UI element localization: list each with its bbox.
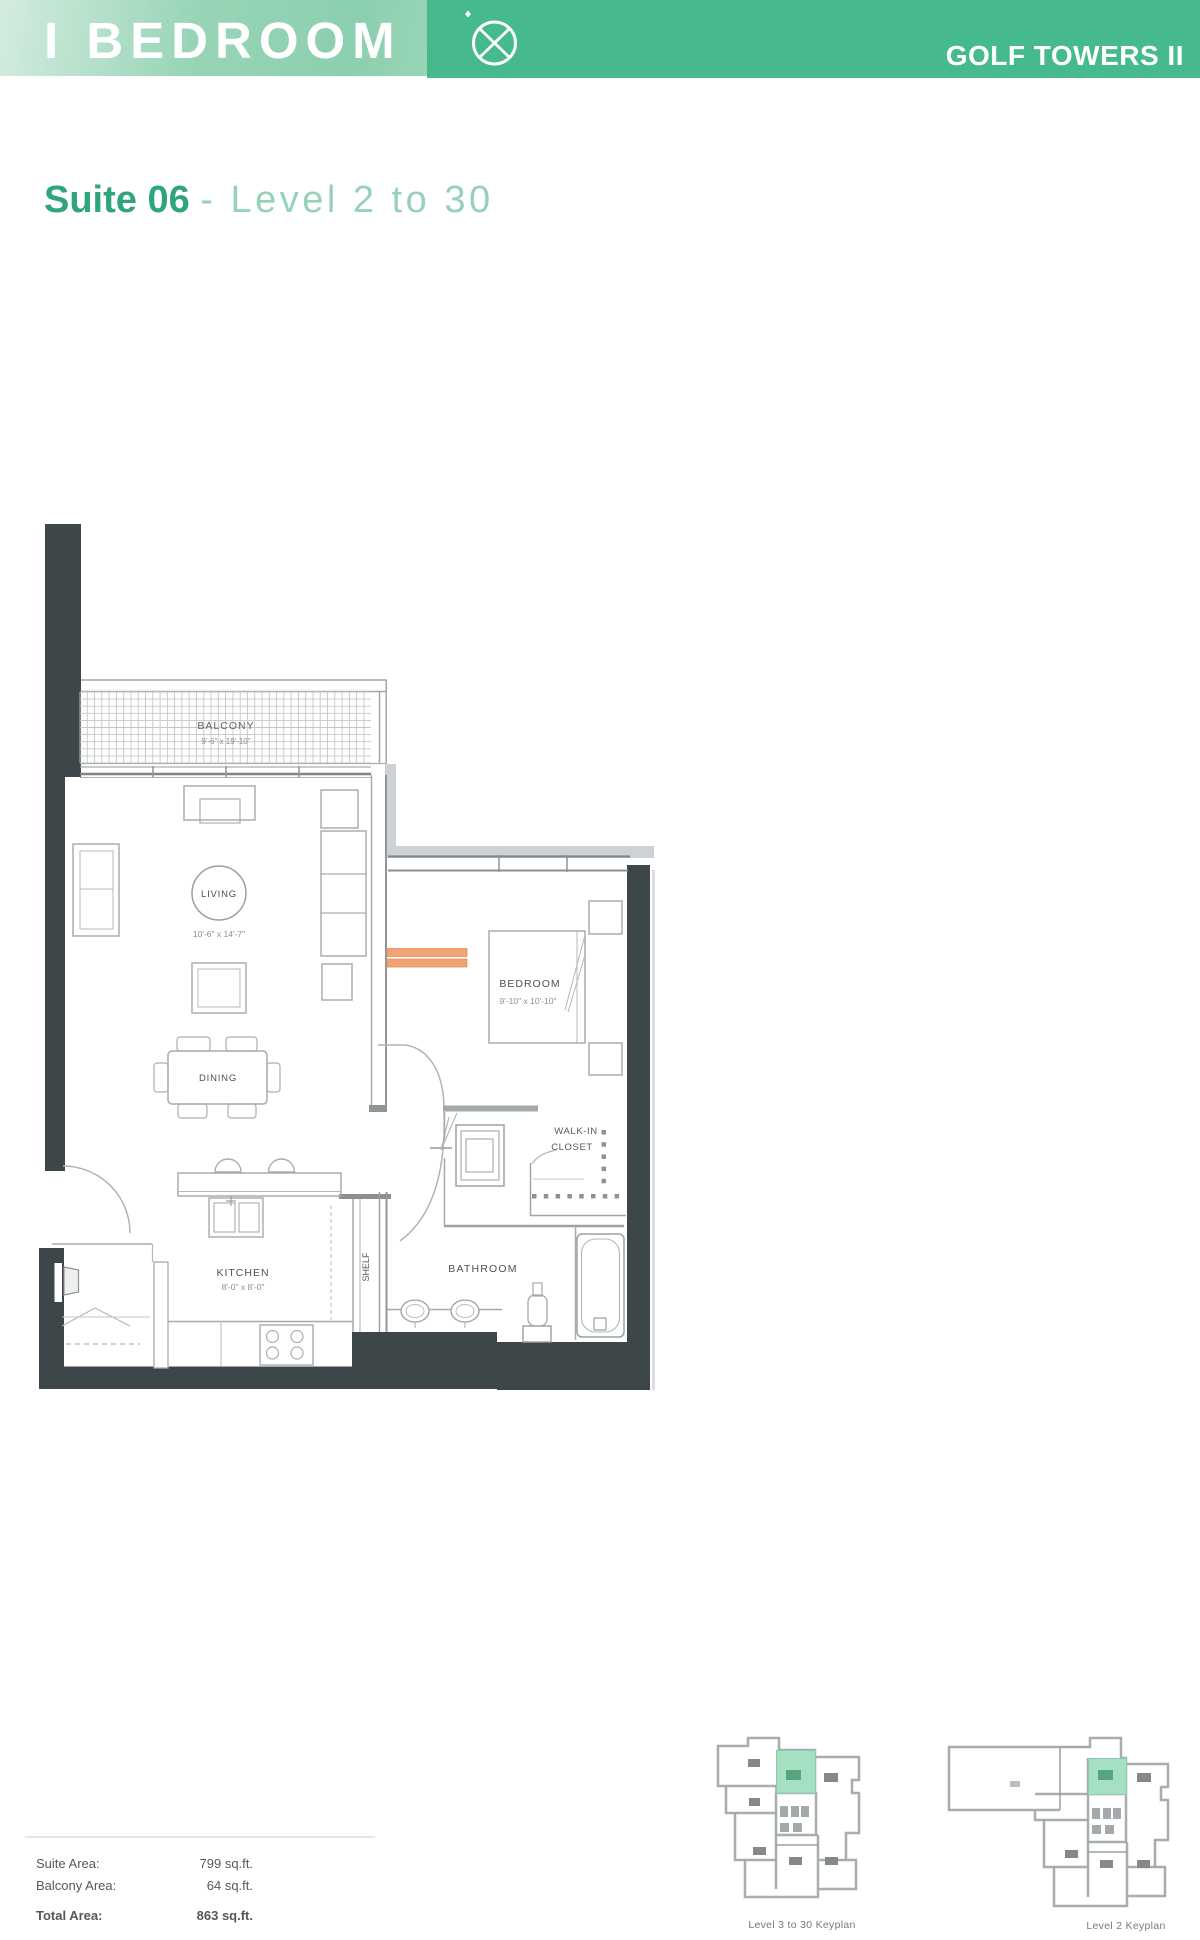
- svg-text:9'-10" x 10'-10": 9'-10" x 10'-10": [499, 996, 556, 1006]
- svg-text:10'-6" x 14'-7": 10'-6" x 14'-7": [193, 929, 245, 939]
- svg-text:BATHROOM: BATHROOM: [448, 1263, 518, 1275]
- svg-text:DINING: DINING: [199, 1073, 237, 1084]
- svg-text:CLOSET: CLOSET: [551, 1142, 593, 1153]
- svg-text:KITCHEN: KITCHEN: [216, 1267, 269, 1279]
- svg-text:LIVING: LIVING: [201, 889, 237, 900]
- svg-text:9'-6" x 19'-10": 9'-6" x 19'-10": [201, 737, 250, 746]
- svg-text:BALCONY: BALCONY: [197, 720, 254, 732]
- svg-text:BEDROOM: BEDROOM: [499, 978, 560, 990]
- svg-text:Level 2 Keyplan: Level 2 Keyplan: [1086, 1920, 1165, 1932]
- svg-text:WALK-IN: WALK-IN: [554, 1126, 597, 1137]
- svg-text:SHELF: SHELF: [361, 1252, 371, 1282]
- svg-text:Level 3 to 30 Keyplan: Level 3 to 30 Keyplan: [748, 1919, 855, 1931]
- svg-text:8'-0" x 8'-0": 8'-0" x 8'-0": [222, 1282, 265, 1292]
